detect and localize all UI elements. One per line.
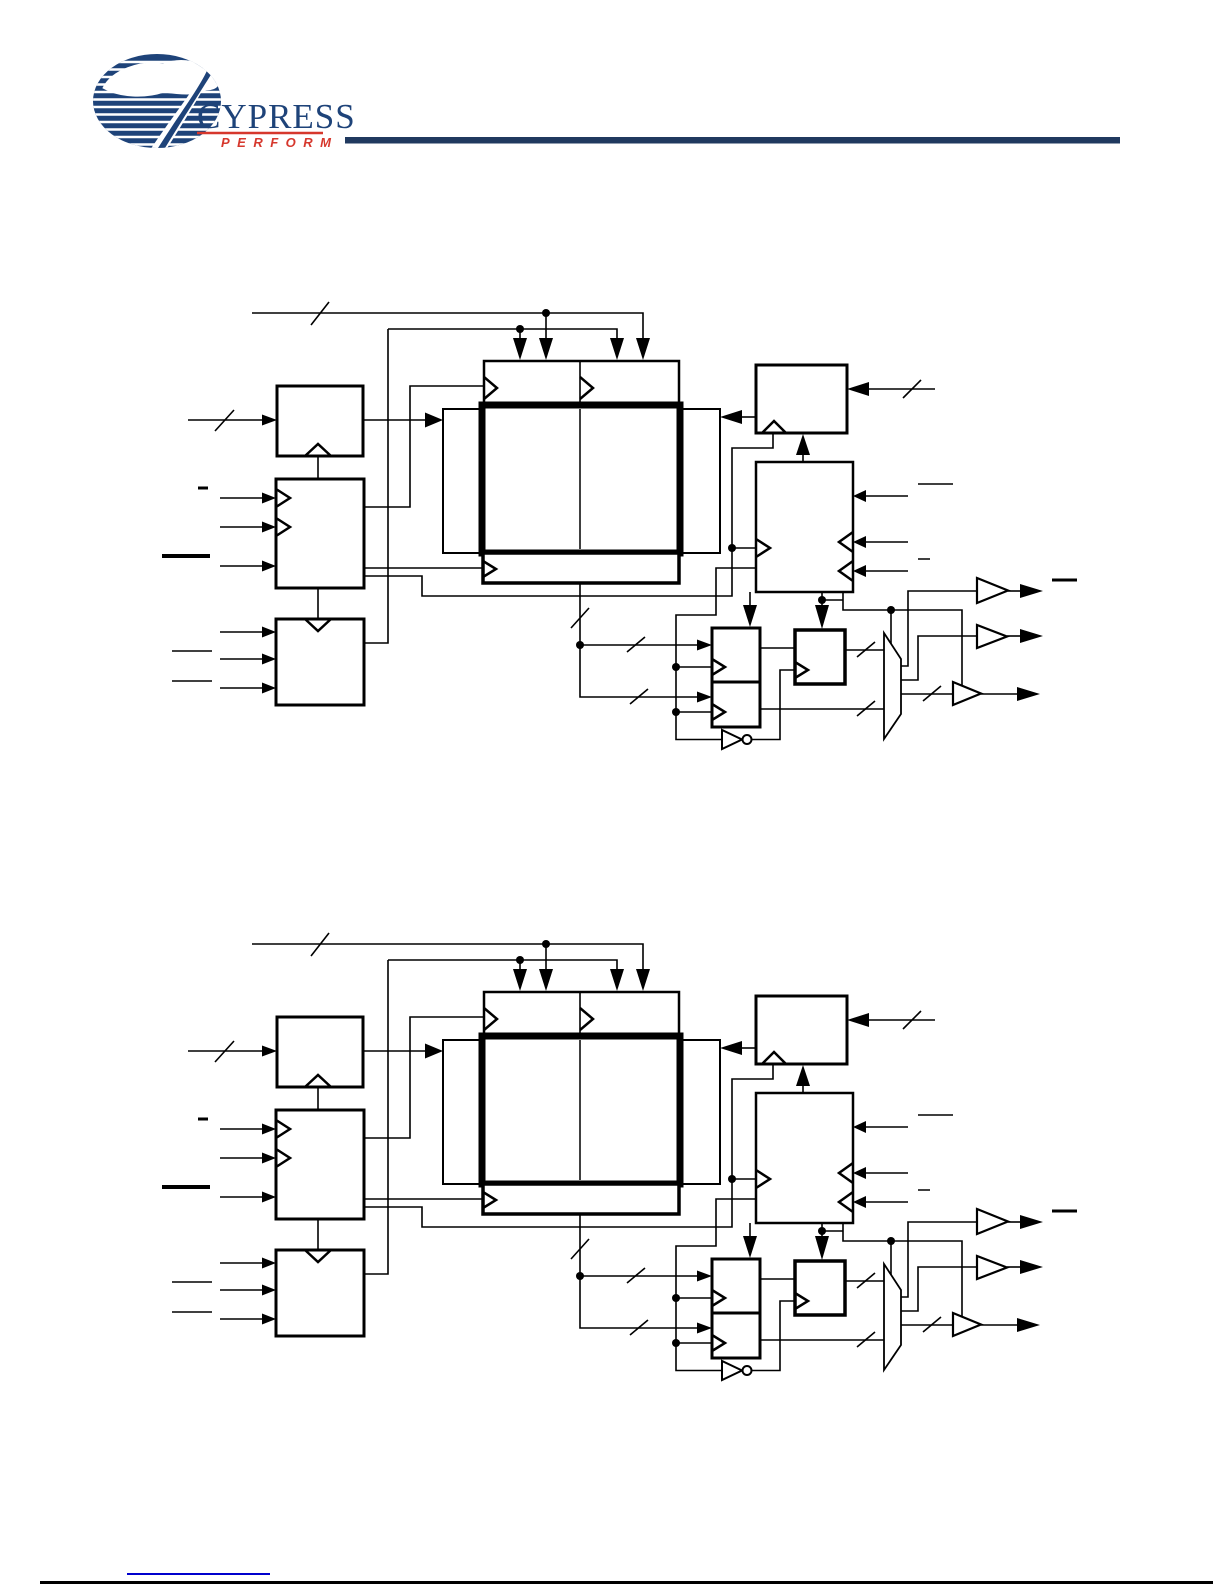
ram-array-box — [482, 405, 680, 553]
header: CYPRESS PERFORM — [80, 54, 1120, 150]
write-control-box — [276, 479, 364, 588]
footer — [40, 1574, 1213, 1583]
output-register-box — [483, 553, 679, 583]
datasheet-page: CYPRESS PERFORM — [0, 0, 1225, 1585]
output-mux — [884, 633, 901, 739]
ram-right-io-box — [682, 409, 720, 553]
sync-register-box — [795, 630, 845, 684]
output-buffer-1 — [977, 578, 1008, 603]
inverter-gate — [722, 730, 752, 749]
fifo-block-diagram-bottom — [162, 933, 1077, 1380]
header-rule — [345, 137, 1120, 144]
brand-wordmark: CYPRESS — [197, 97, 356, 136]
flag-logic-box — [756, 462, 853, 592]
output-buffer-3 — [953, 682, 981, 705]
fifo-block-diagram-top — [162, 302, 1077, 749]
read-control-box — [276, 619, 364, 705]
read-pointer-box — [756, 365, 847, 433]
output-buffer-2 — [977, 625, 1007, 648]
ram-left-io-box — [443, 409, 482, 553]
brand-tagline: PERFORM — [221, 135, 339, 150]
pointer-register-box — [484, 361, 679, 407]
flag-register-a-box — [712, 628, 760, 682]
flag-register-b-box — [712, 682, 760, 727]
